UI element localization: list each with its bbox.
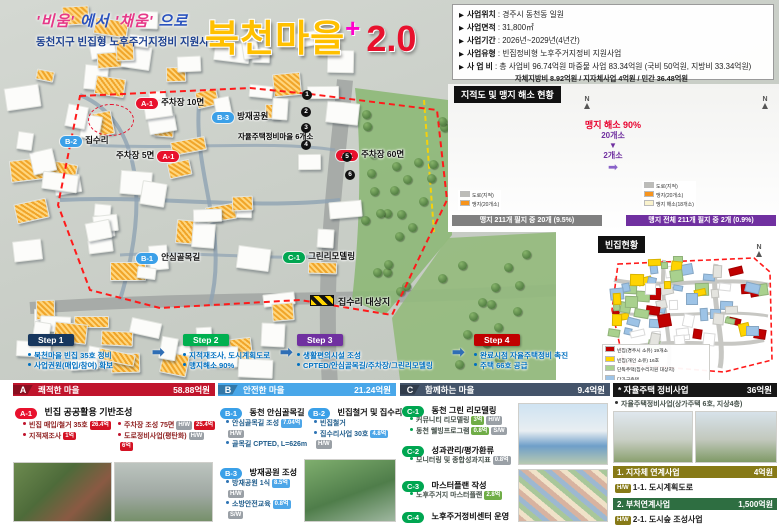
building-number-badge: 3 bbox=[301, 123, 311, 133]
hw-badge: H/W bbox=[316, 440, 332, 449]
bullet-icon: ▶ bbox=[459, 38, 464, 45]
city-owned-swatch bbox=[605, 346, 615, 352]
slogan-block: '비움' 에서 '채움' 으로 동천지구 빈집형 노후주거지정비 지원사업 bbox=[36, 10, 219, 49]
section-c-header: C 함께하는 마을 9.4억원 bbox=[400, 383, 610, 396]
step-2-badge: Step 2 bbox=[183, 334, 229, 346]
cost-badge: 25.4억 bbox=[194, 421, 215, 430]
private-owned-swatch bbox=[605, 356, 615, 362]
map-marker-a1-parking5: 주차장 5면A-1 bbox=[116, 146, 179, 164]
repair-target-swatch bbox=[605, 365, 615, 371]
marker-code: B-2 bbox=[60, 136, 82, 147]
section-title: 쾌적한 마을 bbox=[38, 384, 79, 396]
photo-masterplan-map bbox=[518, 469, 608, 522]
info-row: ▶사 업 비 : 총 사업비 96.74억원 마중물 사업 83.34억원 (국… bbox=[459, 61, 767, 74]
building-number-badge: 1 bbox=[302, 90, 312, 100]
bullet-item: 빈집철거 bbox=[314, 419, 398, 430]
map-marker-b1-alley: B-1안심골목길 bbox=[136, 248, 200, 266]
photo-housing-render-1 bbox=[613, 411, 693, 463]
photo-housing-render-2 bbox=[695, 411, 777, 463]
sub-code: B-3 bbox=[220, 468, 242, 479]
bullet-icon: ▶ bbox=[459, 51, 464, 58]
step-3: Step 3 생활편의시설 조성 CPTED/안심골목길/주차장/그린리모델링 bbox=[297, 330, 433, 371]
hw-badge: H/W bbox=[615, 484, 631, 493]
bullet-item: 소방안전교육0.8억S/W bbox=[226, 500, 306, 521]
hw-badge: H/W bbox=[228, 430, 244, 439]
bullet-item: 커뮤니티 리모델링3억H/W bbox=[410, 416, 518, 427]
section-amount: 9.4억원 bbox=[578, 384, 610, 396]
mangji-resolved-swatch bbox=[644, 200, 654, 206]
bullet-icon: ▶ bbox=[459, 64, 464, 71]
north-arrow: N bbox=[762, 96, 768, 109]
section-letter: B bbox=[218, 385, 238, 395]
arrow-right-icon: ➡ bbox=[452, 343, 465, 361]
section-letter: A bbox=[13, 385, 33, 395]
d-bullet: 자율주택정비사업(상가주택 6호, 지상4층) bbox=[615, 400, 742, 411]
step-2: Step 2 지적재조사, 도시계획도로 맹지해소 90% bbox=[183, 330, 270, 371]
map-marker-a1-parking10: A-1주차장 10면 bbox=[136, 93, 204, 111]
bullet-item: 골목길 CPTED, L=626m bbox=[226, 440, 312, 451]
down-arrow-icon: ▼ bbox=[582, 141, 644, 151]
info-row: ▶사업면적 : 31,800㎡ bbox=[459, 22, 767, 35]
cost-badge: 26.4억 bbox=[90, 421, 111, 430]
poster-root: A-1주차장 10면 B-3방재공원 B-2집수리 주차장 5면A-1 A-1주… bbox=[0, 0, 779, 525]
bullet-item: 도로정비사업(평탄화)H/W6억 bbox=[118, 432, 218, 453]
road-swatch bbox=[460, 191, 470, 197]
a-bullets-col1: 빈집 매입/철거 35호26.4억 지적재조사1억 bbox=[23, 421, 115, 442]
photo-parking-after-render bbox=[114, 462, 213, 522]
cost-badge: 0.8억 bbox=[273, 500, 291, 509]
sub-title: 마스터플랜 작성 bbox=[432, 481, 487, 490]
mangji-resolution-callout: 맹지 해소 90% 20개소 ▼ 2개소 ➡ bbox=[582, 118, 644, 173]
page-title: 북천마을+2.0 bbox=[205, 8, 416, 62]
step-3-badge: Step 3 bbox=[297, 334, 343, 346]
marker-code: B-1 bbox=[136, 253, 158, 264]
project-subtitle: 동천지구 빈집형 노후주거지정비 지원사업 bbox=[36, 34, 219, 49]
section-d-header: * 자율주택 정비사업 36억원 bbox=[613, 383, 777, 397]
hazard-stripe-icon bbox=[310, 295, 334, 306]
info-row: ▶사업위치 : 경주시 동천동 일원 bbox=[459, 9, 767, 22]
bottom-detail-area: A 쾌적한 마을 58.88억원 A-1 빈집 공공활용 기반조성 빈집 매입/… bbox=[0, 380, 779, 525]
photo-green-remodeling-render bbox=[518, 403, 608, 465]
bullet-item: 안심골목길 조성7.04억H/W bbox=[226, 419, 312, 440]
hw-badge: H/W bbox=[228, 490, 244, 499]
cadastral-legend-before: 도로(지적) 맹지(20개소) bbox=[458, 190, 501, 210]
sub-title: 빈집철거 및 집수리 bbox=[338, 408, 403, 417]
section-b-header: B 안전한 마을 21.24억원 bbox=[218, 383, 396, 396]
marker-label: 그린리모델링 bbox=[308, 251, 355, 261]
arrow-right-icon: ➡ bbox=[152, 343, 165, 361]
hw-badge: H/W bbox=[615, 516, 631, 525]
sub-code: C-4 bbox=[402, 512, 424, 523]
caption-before: 맹지 211개 필지 중 20개 (9.5%) bbox=[452, 215, 602, 226]
mangji-swatch bbox=[460, 200, 470, 206]
arrow-right-icon: ➡ bbox=[280, 343, 293, 361]
section-letter: C bbox=[400, 385, 420, 395]
sub-title: 빈집 공공활용 기반조성 bbox=[45, 407, 133, 417]
section-title: 함께하는 마을 bbox=[425, 384, 474, 396]
building-number-badge: 2 bbox=[301, 107, 311, 117]
link-project-1-item: H/W 1-1. 도시계획도로 bbox=[613, 482, 693, 493]
title-version: 2.0 bbox=[366, 18, 416, 59]
project-info-box: ▶사업위치 : 경주시 동천동 일원 ▶사업면적 : 31,800㎡ ▶사업기간… bbox=[452, 4, 774, 80]
bullet-item: 방재공원 1식8.5억H/W bbox=[226, 479, 306, 500]
vacant-house-section: 빈집(경주시 소유) 19개소 빈집(개인 소유) 16호 단독주택(집수리지원… bbox=[556, 232, 779, 380]
cost-badge: 3억 bbox=[471, 416, 484, 425]
marker-code: C-1 bbox=[283, 252, 305, 263]
sub-code: B-1 bbox=[220, 408, 242, 419]
bullet-item: 동천 웰빙프로그램0.8억S/W bbox=[410, 427, 518, 438]
section-title: 안전한 마을 bbox=[243, 384, 284, 396]
sub-title: 성과관리/평가환류 bbox=[432, 446, 495, 455]
a-bullets-col2: 주차장 조성 75면H/W25.4억 도로정비사업(평탄화)H/W6억 bbox=[118, 421, 218, 453]
marker-label: 주차장 10면 bbox=[161, 97, 204, 107]
resolution-headline: 맹지 해소 90% bbox=[582, 118, 644, 131]
mangji-swatch bbox=[644, 191, 654, 197]
marker-label: 주차장 5면 bbox=[116, 150, 154, 160]
marker-code: B-3 bbox=[212, 112, 234, 123]
marker-label: 집수리 bbox=[85, 135, 108, 145]
bullet-item: 빈집 매입/철거 35호26.4억 bbox=[23, 421, 115, 432]
info-row: ▶사업기간 : 2026년~2029년(4년간) bbox=[459, 35, 767, 48]
photo-vacant-house-before bbox=[13, 462, 112, 522]
sub-title: 동천 그린 리모델링 bbox=[432, 406, 497, 415]
resolution-from: 20개소 bbox=[582, 131, 644, 141]
map-marker-c1-green: C-1그린리모델링 bbox=[283, 247, 355, 265]
plus-icon: + bbox=[345, 13, 360, 43]
cadastral-title: 지적도 및 맹지 해소 현황 bbox=[454, 86, 561, 103]
marker-code: A-1 bbox=[136, 98, 158, 109]
step-1: Step 1 북천마을 빈집 35호 정비 사업권원(매입/참여) 확보 bbox=[28, 330, 113, 371]
bullet-item: 노후주거지 마스터플랜2.8억 bbox=[410, 491, 518, 502]
sub-title: 동천 안심골목길 bbox=[250, 408, 305, 417]
repair-target-label: 집수리 대상지 bbox=[310, 292, 390, 310]
sub-code: A-1 bbox=[15, 408, 37, 419]
sub-a1: A-1 빈집 공공활용 기반조성 bbox=[15, 403, 132, 421]
cost-badge: 0.8억 bbox=[471, 427, 489, 436]
cost-badge: 7.04억 bbox=[281, 419, 302, 428]
section-amount: 58.88억원 bbox=[173, 384, 215, 396]
section-b: B 안전한 마을 21.24억원 B-1 동천 안심골목길 안심골목길 조성7.… bbox=[218, 383, 396, 523]
hw-badge: H/W bbox=[189, 432, 205, 441]
link-project-1-header: 1. 지자체 연계사업 4억원 bbox=[613, 466, 777, 478]
sub-title: 방재공원 조성 bbox=[250, 468, 297, 477]
vacant-title: 빈집현황 bbox=[598, 236, 645, 253]
map-marker-b3-park: B-3방재공원 bbox=[212, 107, 268, 125]
step-4-badge: Step 4 bbox=[474, 334, 520, 346]
building-number-badge: 6 bbox=[345, 170, 355, 180]
step-4: Step 4 완료시점 자율주택정비 촉진 주택 66호 공급 bbox=[474, 330, 568, 371]
cost-badge: 8.5억 bbox=[272, 479, 290, 488]
marker-label: 안심골목길 bbox=[161, 252, 200, 262]
bullet-item: 지적재조사1억 bbox=[23, 432, 115, 443]
section-amount: 36억원 bbox=[747, 384, 777, 396]
section-a-header: A 쾌적한 마을 58.88억원 bbox=[13, 383, 215, 396]
cost-badge: 2.8억 bbox=[484, 491, 502, 500]
marker-label: 주차장 60면 bbox=[361, 149, 404, 159]
hw-badge: H/W bbox=[486, 416, 502, 425]
link-project-2-item: H/W 2-1. 도시숲 조성사업 bbox=[613, 514, 703, 525]
north-arrow: N bbox=[584, 96, 590, 109]
map-marker-b2-repair: B-2집수리 bbox=[60, 131, 109, 149]
photo-disaster-park-render bbox=[304, 459, 396, 522]
bullet-item: 모니터링 및 종합성과지표0.8억 bbox=[410, 456, 518, 467]
north-arrow: N bbox=[756, 244, 762, 257]
section-amount: 21.24억원 bbox=[354, 384, 396, 396]
cost-badge: 6억 bbox=[120, 442, 133, 451]
marker-label: 방재공원 bbox=[237, 111, 268, 121]
cadastral-legend-after: 도로(지적) 맹지(20개소) 맹지 해소(18개소) bbox=[642, 181, 696, 210]
step-1-badge: Step 1 bbox=[28, 334, 74, 346]
road-swatch bbox=[644, 182, 654, 188]
section-a: A 쾌적한 마을 58.88억원 A-1 빈집 공공활용 기반조성 빈집 매입/… bbox=[13, 383, 215, 523]
link-project-2-header: 2. 부처연계사업 1,500억원 bbox=[613, 498, 777, 510]
hw-badge: H/W bbox=[176, 421, 192, 430]
sub-code: B-2 bbox=[308, 408, 330, 419]
cost-badge: 1억 bbox=[63, 432, 76, 441]
budget-subnote: 자체지방비 8.92억원 / 지자체사업 4억원 / 민간 36.48억원 bbox=[515, 74, 767, 84]
bullet-item: 주차장 조성 75면H/W25.4억 bbox=[118, 421, 218, 432]
sw-badge: S/W bbox=[491, 427, 506, 436]
sub-c4: C-4 노후주거정비센터 운영 bbox=[402, 507, 509, 525]
arrow-right-icon: ➡ bbox=[582, 161, 644, 173]
building-number-badge: 4 bbox=[301, 140, 311, 150]
caption-after: 맹지 전체 211개 필지 중 2개 (0.9%) bbox=[626, 215, 776, 226]
section-d: * 자율주택 정비사업 36억원 자율주택정비사업(상가주택 6호, 지상4층)… bbox=[613, 383, 777, 523]
marker-code: A-1 bbox=[157, 151, 179, 162]
sub-title: 노후주거정비센터 운영 bbox=[432, 512, 510, 521]
cost-badge: 0.8억 bbox=[493, 456, 511, 465]
bullet-icon: ▶ bbox=[459, 25, 464, 32]
info-row: ▶사업유형 : 빈집정비형 노후주거지정비 지원사업 bbox=[459, 48, 767, 61]
building-number-badge: 5 bbox=[342, 152, 352, 162]
slogan: '비움' 에서 '채움' 으로 bbox=[36, 10, 219, 31]
sw-badge: S/W bbox=[228, 511, 243, 520]
cost-badge: 4.8억 bbox=[370, 430, 388, 439]
section-c: C 함께하는 마을 9.4억원 C-1 동천 그린 리모델링 커뮤니티 리모델링… bbox=[400, 383, 610, 523]
bullet-item: 집수리사업 30호4.8억H/W bbox=[314, 430, 398, 451]
section-title: * 자율주택 정비사업 bbox=[618, 384, 689, 396]
bullet-icon: ▶ bbox=[459, 12, 464, 19]
vacant-map-buildings bbox=[608, 254, 766, 346]
title-main: 북천마을 bbox=[205, 18, 345, 59]
